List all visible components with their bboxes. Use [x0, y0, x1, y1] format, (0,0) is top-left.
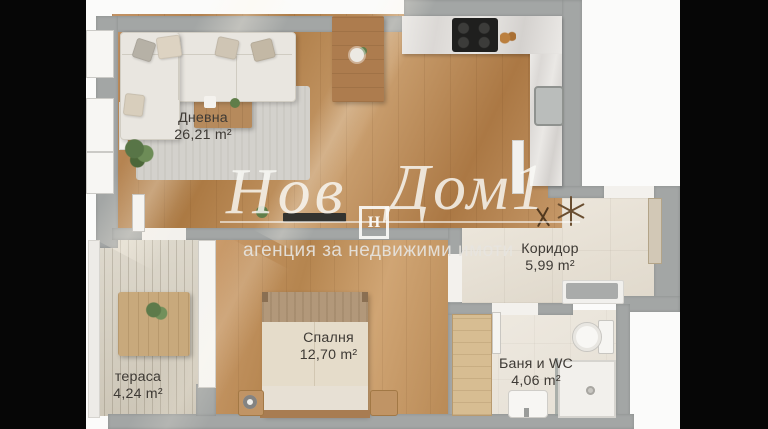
table-vase-icon	[350, 48, 364, 62]
room-label-bathroom: Баня и WC 4,06 m²	[494, 356, 578, 389]
letterbox-right	[680, 0, 768, 429]
bedside-lamp-icon	[243, 395, 257, 409]
kitchen-sink-icon	[534, 86, 564, 126]
room-area: 26,21 m²	[160, 127, 246, 144]
letterbox-left	[0, 0, 86, 429]
wall-kitchen-right	[562, 0, 582, 188]
bedroom-door-opening	[448, 254, 462, 302]
sofa-pillow	[123, 93, 146, 117]
bed-foot-blanket	[262, 292, 368, 322]
shelf-plant-icon	[256, 206, 268, 218]
room-name: Спалня	[286, 330, 371, 347]
sofa-pillow	[214, 36, 240, 60]
terrace-door-opening	[142, 228, 186, 240]
sofa-seam	[178, 56, 179, 100]
bed-post	[262, 292, 268, 302]
terrace-plant-icon	[144, 300, 168, 322]
coffee-table-plant-icon	[230, 98, 240, 108]
wall-terrace-bedroom-block	[196, 384, 216, 416]
nightstand	[370, 390, 398, 416]
sink-faucet-icon	[524, 408, 529, 417]
room-label-bedroom: Спалня 12,70 m²	[286, 330, 371, 363]
wall-bathroom-right	[616, 304, 630, 416]
bedroom-terrace-window	[198, 240, 216, 388]
cooktop-icon	[452, 18, 498, 52]
sofa-seam	[236, 56, 237, 100]
shower-drain-icon	[586, 386, 595, 395]
wardrobe	[452, 314, 492, 416]
entry-door-leaf	[648, 198, 662, 264]
kitchen-tall-cabinet	[512, 140, 524, 194]
bed-post	[362, 292, 368, 302]
room-area: 12,70 m²	[286, 347, 371, 364]
bed-headboard	[260, 410, 370, 418]
window	[86, 98, 114, 152]
bench-cushion	[566, 283, 618, 299]
coffee-table-tray-icon	[204, 96, 216, 108]
coat-rack-icon	[556, 196, 586, 226]
room-label-living: Дневна 26,21 m²	[160, 110, 246, 143]
room-area: 5,99 m²	[508, 258, 592, 275]
wall-kitchen-top	[404, 0, 582, 16]
sofa-pillow	[156, 34, 183, 59]
room-label-terrace: тераса 4,24 m²	[98, 369, 178, 402]
room-name: тераса	[98, 369, 178, 386]
floor-plan-screenshot: Дневна 26,21 m² Спалня 12,70 m² тераса 4…	[0, 0, 768, 429]
window	[86, 30, 114, 78]
room-name: Баня и WC	[494, 356, 578, 373]
coat-rack-icon	[534, 206, 552, 228]
toilet-icon	[572, 322, 602, 352]
room-name: Дневна	[160, 110, 246, 127]
counter-decor-icon	[500, 30, 516, 46]
window	[86, 152, 114, 194]
entry-door-opening	[604, 186, 654, 198]
tv-icon	[283, 213, 346, 222]
room-area: 4,24 m²	[98, 386, 178, 403]
bathroom-door-leaf	[492, 312, 501, 354]
terrace-door-leaf	[132, 194, 145, 232]
plant-icon	[124, 136, 154, 168]
wall-bottom	[108, 414, 634, 429]
room-name: Коридор	[508, 241, 592, 258]
room-label-corridor: Коридор 5,99 m²	[508, 241, 592, 274]
room-area: 4,06 m²	[494, 373, 578, 390]
